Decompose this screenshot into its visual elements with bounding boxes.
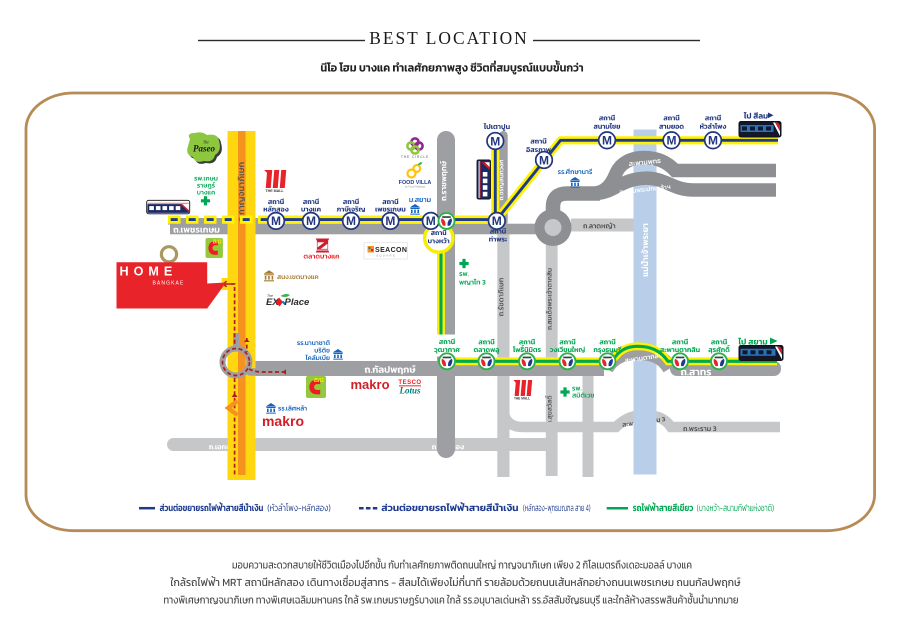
svg-text:THE CIRCLE: THE CIRCLE bbox=[401, 155, 429, 159]
svg-text:makro: makro bbox=[350, 377, 389, 392]
svg-text:Place: Place bbox=[285, 297, 311, 308]
svg-text:The: The bbox=[203, 140, 209, 145]
svg-text:SQUARE: SQUARE bbox=[376, 253, 396, 257]
svg-text:The: The bbox=[267, 294, 273, 298]
svg-text:Lotus: Lotus bbox=[398, 386, 421, 396]
svg-text:BiG: BiG bbox=[314, 378, 325, 384]
svg-text:BANGKAE: BANGKAE bbox=[153, 281, 185, 287]
svg-text:by Food Holdings: by Food Holdings bbox=[405, 185, 426, 189]
svg-text:THE MALL: THE MALL bbox=[265, 189, 284, 193]
svg-text:makro: makro bbox=[262, 413, 304, 429]
svg-text:Paseo: Paseo bbox=[193, 144, 215, 154]
svg-text:THE MALL: THE MALL bbox=[514, 397, 530, 401]
svg-text:HOME: HOME bbox=[120, 265, 178, 279]
svg-text:BiG: BiG bbox=[213, 240, 222, 246]
svg-text:BEST LOCATION: BEST LOCATION bbox=[369, 28, 529, 48]
